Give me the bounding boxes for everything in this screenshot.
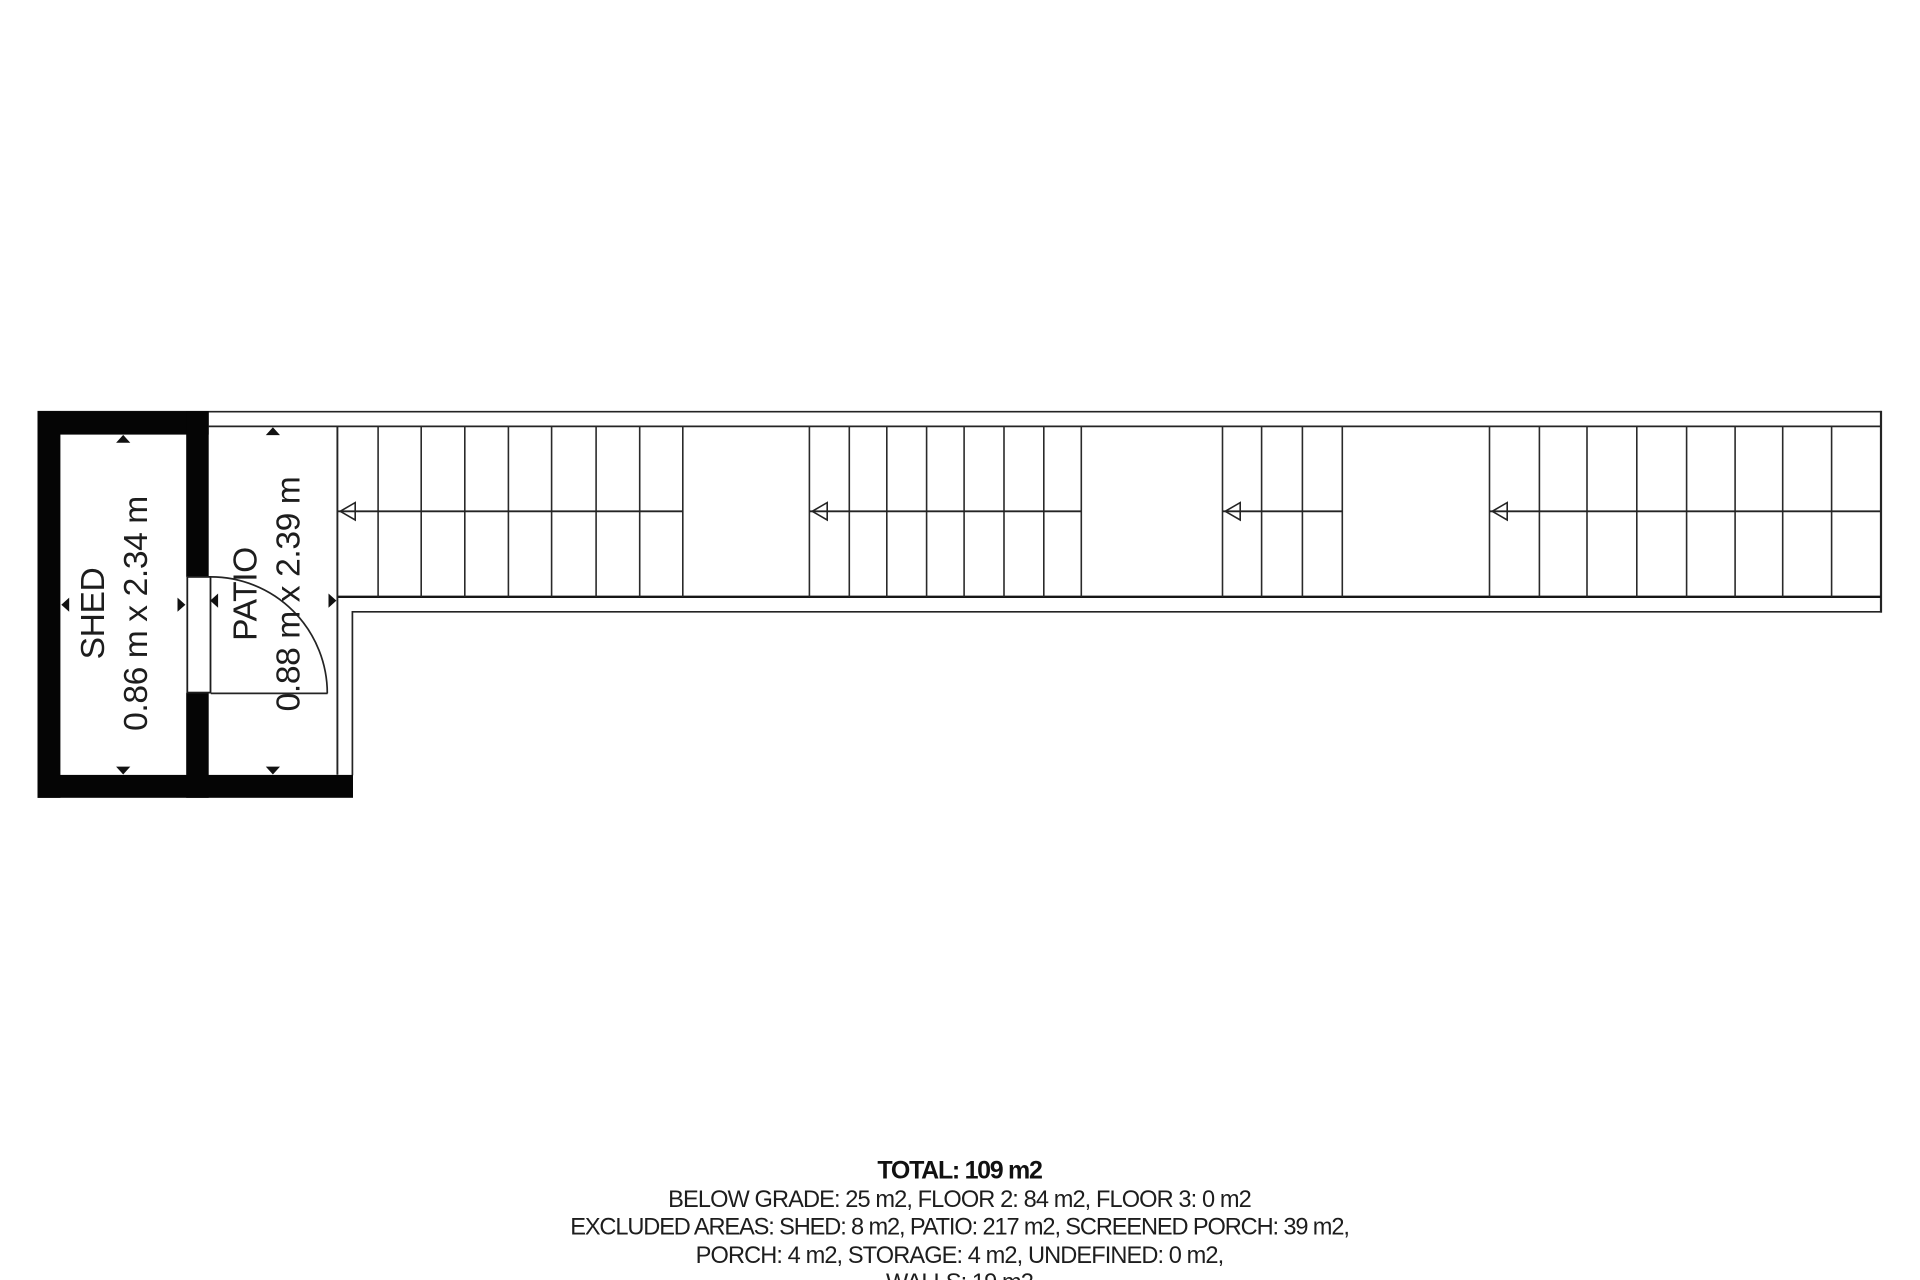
svg-text:BELOW GRADE: 25 m2, FLOOR 2: 8: BELOW GRADE: 25 m2, FLOOR 2: 84 m2, FLOO… (668, 1187, 1251, 1213)
svg-text:PORCH: 4 m2, STORAGE: 4 m2, UN: PORCH: 4 m2, STORAGE: 4 m2, UNDEFINED: 0… (696, 1243, 1224, 1269)
svg-text:WALLS: 19 m2: WALLS: 19 m2 (886, 1270, 1033, 1280)
svg-text:TOTAL: 109 m2: TOTAL: 109 m2 (877, 1156, 1042, 1184)
svg-text:EXCLUDED AREAS: SHED: 8 m2, PA: EXCLUDED AREAS: SHED: 8 m2, PATIO: 217 m… (570, 1215, 1349, 1241)
